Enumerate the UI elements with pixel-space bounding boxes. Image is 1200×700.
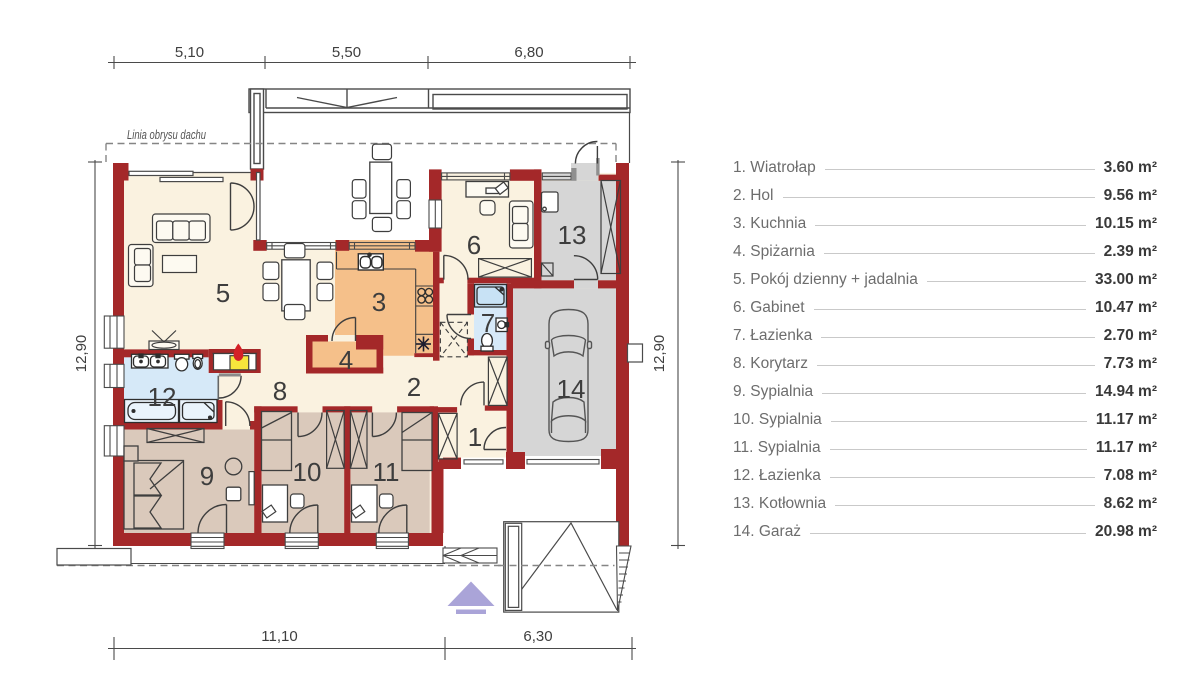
svg-text:10: 10: [293, 457, 322, 487]
svg-text:12: 12: [148, 382, 177, 412]
svg-text:6,30: 6,30: [523, 628, 552, 645]
svg-text:7: 7: [481, 308, 495, 338]
svg-text:6: 6: [467, 230, 481, 260]
svg-text:3: 3: [372, 287, 386, 317]
svg-text:5,10: 5,10: [175, 44, 204, 61]
svg-text:5,50: 5,50: [332, 44, 361, 61]
svg-text:5: 5: [216, 278, 230, 308]
svg-text:Linia obrysu dachu: Linia obrysu dachu: [127, 128, 206, 142]
svg-text:6,80: 6,80: [514, 44, 543, 61]
svg-text:1: 1: [468, 422, 482, 452]
svg-text:4: 4: [339, 345, 353, 375]
svg-text:9: 9: [200, 461, 214, 491]
svg-text:12,90: 12,90: [73, 335, 90, 373]
svg-text:8: 8: [273, 376, 287, 406]
svg-text:13: 13: [558, 220, 587, 250]
svg-text:14: 14: [557, 374, 586, 404]
svg-text:12,90: 12,90: [651, 335, 668, 373]
svg-text:2: 2: [407, 372, 421, 402]
svg-text:11: 11: [373, 457, 400, 487]
svg-text:11,10: 11,10: [261, 628, 297, 645]
